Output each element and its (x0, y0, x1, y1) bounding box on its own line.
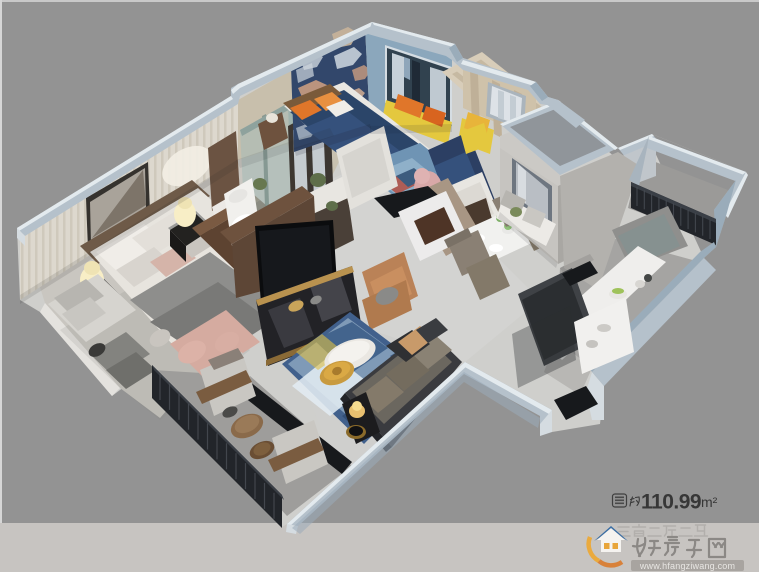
svg-text:110.99: 110.99 (641, 491, 701, 514)
svg-text:www.hfangziwang.com: www.hfangziwang.com (639, 561, 735, 571)
svg-text:m²: m² (701, 494, 718, 510)
